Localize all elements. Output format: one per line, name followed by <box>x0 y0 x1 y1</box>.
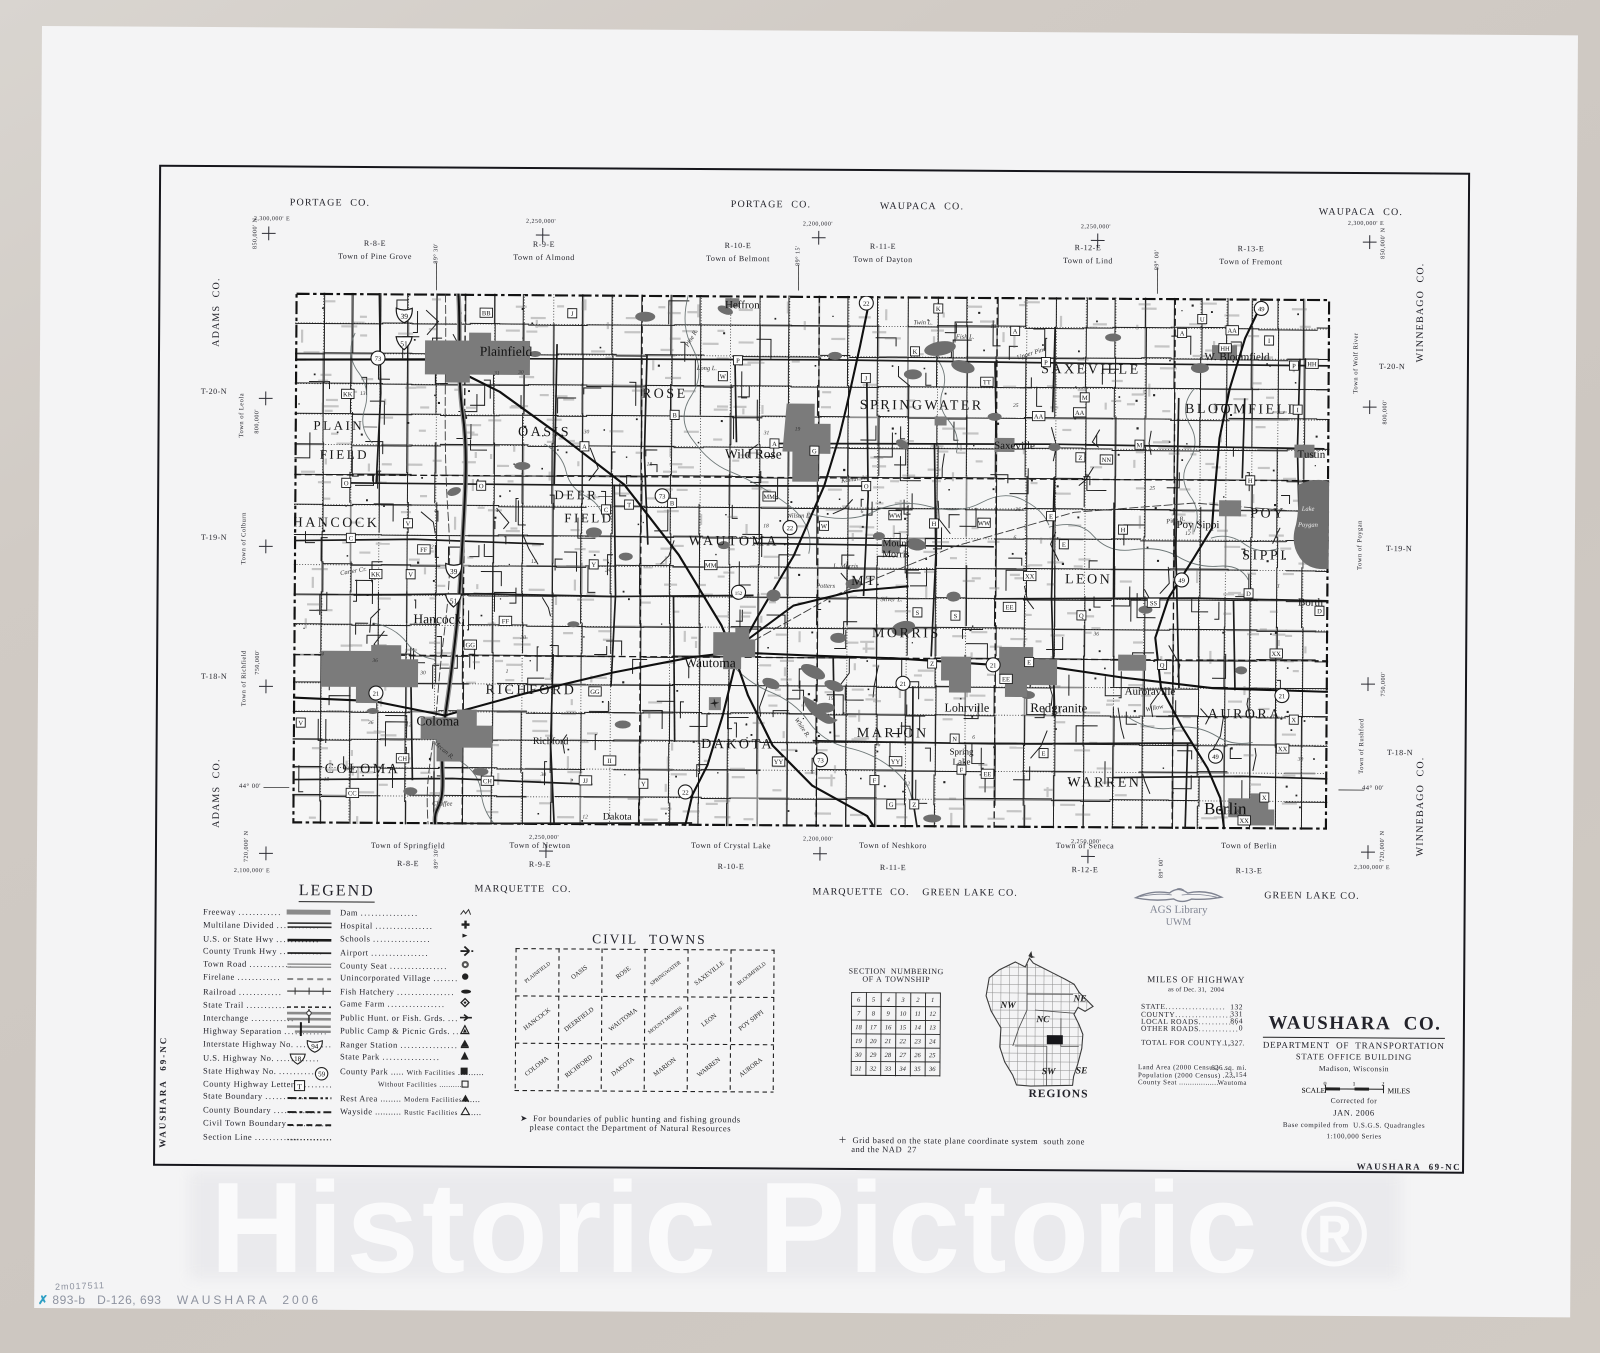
svg-text:V: V <box>405 521 410 528</box>
svg-text:34: 34 <box>898 1066 906 1073</box>
svg-text:CH: CH <box>482 779 491 786</box>
svg-text:17: 17 <box>870 1024 877 1031</box>
svg-text:Poygan: Poygan <box>1297 522 1318 529</box>
svg-text:NE: NE <box>1072 994 1086 1004</box>
svg-text:YY: YY <box>890 759 900 766</box>
svg-text:22: 22 <box>786 526 793 533</box>
svg-text:7: 7 <box>1134 365 1137 371</box>
svg-text:SCALE: SCALE <box>1301 1086 1325 1095</box>
svg-text:V: V <box>408 572 413 579</box>
svg-text:XX: XX <box>1239 818 1249 825</box>
svg-text:30: 30 <box>517 370 524 376</box>
svg-text:21: 21 <box>899 681 906 688</box>
svg-text:MM: MM <box>705 563 717 570</box>
svg-text:V: V <box>298 720 303 727</box>
svg-text:MT.: MT. <box>851 574 882 589</box>
svg-text:30: 30 <box>1296 757 1303 763</box>
svg-text:0: 0 <box>1324 1082 1327 1088</box>
svg-text:D: D <box>1246 591 1251 598</box>
svg-text:30: 30 <box>519 635 526 641</box>
svg-text:32: 32 <box>869 1066 877 1073</box>
svg-text:Twin L.: Twin L. <box>913 320 933 327</box>
svg-text:11: 11 <box>915 1011 921 1018</box>
svg-text:FIELD: FIELD <box>319 447 368 462</box>
svg-text:H: H <box>1247 478 1252 485</box>
svg-text:24: 24 <box>605 567 611 574</box>
svg-text:L. Morris: L. Morris <box>832 563 858 570</box>
svg-text:4: 4 <box>887 997 891 1004</box>
svg-text:51: 51 <box>449 597 457 606</box>
svg-text:21: 21 <box>1278 694 1285 701</box>
svg-text:39: 39 <box>449 567 457 576</box>
svg-text:H: H <box>1120 527 1125 534</box>
svg-text:Silver L.: Silver L. <box>880 597 902 604</box>
svg-text:Z: Z <box>912 802 916 809</box>
svg-text:W: W <box>719 374 726 381</box>
svg-text:EE: EE <box>1005 605 1013 612</box>
svg-text:XX: XX <box>1025 574 1035 581</box>
svg-text:35: 35 <box>913 1066 921 1073</box>
svg-text:24: 24 <box>929 1038 936 1045</box>
svg-text:1: 1 <box>1353 1082 1356 1088</box>
svg-text:Q: Q <box>1079 613 1084 620</box>
svg-text:OASIS: OASIS <box>518 425 571 440</box>
svg-text:25: 25 <box>1149 486 1155 492</box>
svg-text:FF: FF <box>420 547 428 554</box>
svg-text:18: 18 <box>990 324 996 330</box>
svg-text:KK: KK <box>371 572 381 579</box>
svg-text:30: 30 <box>582 430 589 436</box>
svg-text:Lake: Lake <box>1300 506 1314 513</box>
svg-text:LEON: LEON <box>700 1012 718 1028</box>
svg-text:59: 59 <box>318 1070 326 1078</box>
svg-text:WAUTOMA: WAUTOMA <box>608 1007 639 1033</box>
svg-text:U: U <box>1199 317 1204 324</box>
svg-text:AA: AA <box>1227 328 1237 335</box>
svg-text:Coloma: Coloma <box>416 714 459 729</box>
svg-text:X: X <box>1291 718 1296 725</box>
svg-text:AGS Library: AGS Library <box>1150 904 1208 916</box>
svg-text:BLOOMFIELD: BLOOMFIELD <box>1185 402 1300 418</box>
svg-text:152: 152 <box>734 592 742 597</box>
svg-text:Redgranite: Redgranite <box>1030 700 1087 715</box>
svg-text:M: M <box>1136 443 1142 450</box>
svg-text:7: 7 <box>1200 759 1203 765</box>
svg-text:WARREN: WARREN <box>1067 776 1141 791</box>
svg-text:1: 1 <box>505 669 508 675</box>
svg-text:F: F <box>872 778 876 785</box>
svg-text:10: 10 <box>900 1011 907 1018</box>
svg-text:SAXEVILLE: SAXEVILLE <box>693 960 726 987</box>
svg-text:ROSE: ROSE <box>641 387 687 402</box>
svg-text:PLAINFIELD: PLAINFIELD <box>524 961 552 985</box>
svg-text:2: 2 <box>916 997 920 1004</box>
svg-text:Dakota: Dakota <box>602 812 632 823</box>
svg-text:SE: SE <box>1076 1066 1088 1076</box>
svg-text:AURORA: AURORA <box>738 1056 764 1078</box>
svg-text:EE: EE <box>983 772 991 779</box>
svg-text:18: 18 <box>323 777 329 783</box>
svg-text:33: 33 <box>884 1066 892 1073</box>
svg-text:SW: SW <box>1042 1067 1056 1077</box>
svg-text:GG: GG <box>590 689 600 696</box>
svg-text:G: G <box>812 449 817 456</box>
svg-text:49: 49 <box>1178 578 1185 585</box>
svg-text:6: 6 <box>1013 535 1016 541</box>
svg-text:22: 22 <box>682 790 689 797</box>
svg-text:B: B <box>672 413 677 420</box>
svg-text:21: 21 <box>885 1038 892 1045</box>
svg-text:12: 12 <box>929 1011 936 1018</box>
svg-text:7: 7 <box>857 1010 861 1017</box>
svg-text:HANCOCK: HANCOCK <box>292 516 379 532</box>
svg-text:30: 30 <box>539 772 546 778</box>
svg-text:WARREN: WARREN <box>696 1056 722 1078</box>
svg-text:Potters: Potters <box>815 583 835 590</box>
svg-text:36: 36 <box>928 1066 936 1073</box>
svg-text:18: 18 <box>763 524 769 530</box>
svg-text:Q: Q <box>1159 663 1164 670</box>
svg-text:HH: HH <box>1220 346 1230 353</box>
svg-text:6: 6 <box>972 735 975 741</box>
svg-text:25: 25 <box>929 1052 936 1059</box>
svg-text:5: 5 <box>872 997 876 1004</box>
svg-text:6: 6 <box>860 509 863 515</box>
svg-text:3: 3 <box>900 997 905 1004</box>
svg-text:F: F <box>959 768 963 775</box>
svg-text:LEON: LEON <box>1065 573 1112 588</box>
svg-text:39: 39 <box>400 312 408 321</box>
svg-text:7: 7 <box>1226 811 1229 817</box>
svg-text:26: 26 <box>914 1052 921 1059</box>
svg-text:PLAIN—: PLAIN— <box>313 418 379 433</box>
svg-text:K: K <box>936 306 941 313</box>
svg-text:19: 19 <box>794 427 800 433</box>
svg-text:Heffron: Heffron <box>725 300 760 312</box>
svg-text:BLOOMFIELD: BLOOMFIELD <box>736 961 767 987</box>
svg-text:COLOMA: COLOMA <box>524 1055 551 1078</box>
svg-text:2: 2 <box>1382 1082 1385 1088</box>
svg-text:NC: NC <box>1035 1015 1050 1025</box>
svg-text:XX: XX <box>1277 746 1287 753</box>
svg-text:27: 27 <box>899 1052 906 1059</box>
svg-text:SPRINGWATER: SPRINGWATER <box>649 960 682 988</box>
svg-text:AURORA: AURORA <box>1207 708 1281 723</box>
svg-text:18: 18 <box>294 1055 302 1063</box>
svg-text:NW: NW <box>999 1001 1016 1011</box>
svg-text:31: 31 <box>762 431 769 437</box>
svg-text:SAXEVILLE: SAXEVILLE <box>1041 362 1141 378</box>
svg-text:Fish L.: Fish L. <box>954 334 974 341</box>
svg-text:SS: SS <box>1149 601 1157 608</box>
svg-text:73: 73 <box>817 758 824 765</box>
svg-text:MORRIS: MORRIS <box>872 626 941 641</box>
svg-text:H: H <box>931 521 936 528</box>
svg-text:36: 36 <box>367 720 374 726</box>
svg-text:SIPPI: SIPPI <box>1242 549 1287 564</box>
svg-text:MOUNT MORRIS: MOUNT MORRIS <box>647 1006 684 1036</box>
svg-text:N: N <box>952 736 957 743</box>
svg-text:51: 51 <box>400 340 408 349</box>
svg-text:Morris: Morris <box>882 550 909 561</box>
svg-text:14: 14 <box>914 1025 921 1032</box>
svg-text:K: K <box>912 349 917 356</box>
svg-text:A: A <box>1179 331 1184 338</box>
svg-text:P: P <box>736 358 740 365</box>
svg-text:Plainfield: Plainfield <box>479 344 532 359</box>
svg-text:12: 12 <box>582 815 588 821</box>
svg-text:A: A <box>1012 329 1017 336</box>
svg-text:M: M <box>1081 395 1087 402</box>
svg-text:1: 1 <box>931 997 934 1004</box>
svg-text:19: 19 <box>828 696 834 702</box>
svg-text:C: C <box>348 536 352 543</box>
svg-text:12: 12 <box>904 782 910 788</box>
svg-text:E: E <box>1027 660 1031 667</box>
svg-text:WW: WW <box>888 513 901 520</box>
svg-text:24: 24 <box>318 651 324 658</box>
svg-text:28: 28 <box>885 1052 892 1059</box>
svg-text:I: I <box>1268 338 1270 345</box>
svg-text:POY: POY <box>1250 507 1286 522</box>
svg-text:12: 12 <box>406 723 412 729</box>
svg-text:MM: MM <box>763 494 775 501</box>
svg-text:73: 73 <box>374 356 381 363</box>
svg-text:E: E <box>1041 751 1045 758</box>
svg-text:9: 9 <box>887 1011 891 1018</box>
svg-text:WW: WW <box>977 521 990 528</box>
svg-text:O: O <box>863 484 868 491</box>
svg-text:Auroraville: Auroraville <box>1124 686 1175 698</box>
svg-text:W. Bloomfield: W. Bloomfield <box>1204 351 1270 363</box>
svg-text:BB: BB <box>481 311 490 318</box>
svg-text:O: O <box>478 484 483 491</box>
svg-text:POY SIPPI: POY SIPPI <box>737 1009 765 1033</box>
svg-text:73: 73 <box>658 494 665 501</box>
svg-text:Y: Y <box>591 562 596 569</box>
svg-text:36: 36 <box>1092 632 1099 638</box>
svg-text:DEER—: DEER— <box>554 488 614 503</box>
svg-text:I: I <box>1296 408 1298 415</box>
svg-text:COLOMA: COLOMA <box>324 762 400 777</box>
svg-text:25: 25 <box>1013 403 1019 409</box>
svg-text:GG: GG <box>465 642 475 649</box>
svg-text:18: 18 <box>1233 810 1239 816</box>
svg-text:Saxeville: Saxeville <box>994 440 1035 452</box>
svg-text:1: 1 <box>1277 584 1280 590</box>
svg-text:19: 19 <box>855 1038 862 1045</box>
svg-text:23: 23 <box>914 1038 921 1045</box>
svg-text:T: T <box>627 502 631 509</box>
svg-text:30: 30 <box>419 671 426 677</box>
svg-text:E: E <box>1061 542 1065 549</box>
svg-text:S: S <box>915 610 919 617</box>
svg-text:FF: FF <box>501 619 509 626</box>
svg-text:Tustin: Tustin <box>1297 449 1325 461</box>
svg-text:Z: Z <box>1078 455 1082 462</box>
svg-text:RICHFORD: RICHFORD <box>564 1054 595 1080</box>
svg-text:Long L.: Long L. <box>695 365 717 372</box>
svg-text:UWM: UWM <box>1166 917 1192 928</box>
svg-text:13: 13 <box>360 391 366 397</box>
svg-text:HH: HH <box>1307 362 1317 369</box>
svg-text:15: 15 <box>900 1024 907 1031</box>
svg-text:Y: Y <box>641 782 646 789</box>
svg-text:DAKOTA: DAKOTA <box>701 737 774 752</box>
svg-text:22: 22 <box>900 1038 907 1045</box>
svg-text:18: 18 <box>855 1024 862 1031</box>
svg-text:CC: CC <box>348 791 357 798</box>
svg-text:D: D <box>1317 609 1322 616</box>
svg-text:XX: XX <box>1271 651 1281 658</box>
svg-text:A: A <box>582 444 587 451</box>
svg-text:31: 31 <box>854 1066 862 1073</box>
svg-text:WAUTOMA: WAUTOMA <box>688 534 778 550</box>
svg-text:MILES: MILES <box>1387 1086 1410 1095</box>
svg-text:Richford: Richford <box>532 736 568 747</box>
svg-text:NN: NN <box>1101 457 1111 464</box>
svg-text:30: 30 <box>854 1052 862 1059</box>
svg-text:Lohrville: Lohrville <box>944 701 989 715</box>
svg-text:MARION: MARION <box>856 726 928 741</box>
svg-text:II: II <box>607 758 611 765</box>
svg-text:E: E <box>1049 514 1053 521</box>
svg-text:W: W <box>820 524 827 531</box>
svg-text:Hancock: Hancock <box>413 612 461 627</box>
svg-text:18: 18 <box>646 462 652 468</box>
svg-text:S: S <box>953 613 957 620</box>
svg-text:94: 94 <box>311 1043 319 1051</box>
svg-text:13: 13 <box>929 1025 936 1032</box>
svg-text:20: 20 <box>870 1038 877 1045</box>
svg-text:YY: YY <box>773 759 783 766</box>
svg-text:Spring: Spring <box>949 747 974 757</box>
svg-text:36: 36 <box>873 742 880 748</box>
svg-text:CH: CH <box>398 756 407 763</box>
svg-text:6: 6 <box>857 997 861 1004</box>
svg-text:Chaffee: Chaffee <box>432 801 452 808</box>
svg-text:JJ: JJ <box>582 778 588 785</box>
svg-text:HANCOCK: HANCOCK <box>522 1007 552 1032</box>
svg-text:12: 12 <box>531 559 537 565</box>
svg-text:AA: AA <box>1075 410 1085 417</box>
svg-text:36: 36 <box>1014 507 1021 513</box>
svg-text:Wautoma: Wautoma <box>684 655 735 670</box>
svg-text:OASIS: OASIS <box>570 964 589 981</box>
svg-text:21: 21 <box>372 691 379 698</box>
svg-text:22: 22 <box>863 301 870 308</box>
svg-text:A: A <box>772 441 777 448</box>
svg-text:DAKOTA: DAKOTA <box>610 1056 636 1078</box>
svg-text:P: P <box>1044 360 1048 367</box>
svg-text:16: 16 <box>885 1024 892 1031</box>
svg-text:Wilson L.: Wilson L. <box>786 513 811 520</box>
svg-text:21: 21 <box>989 663 996 670</box>
svg-text:P: P <box>1292 364 1296 371</box>
svg-text:31: 31 <box>493 371 500 377</box>
svg-text:O: O <box>343 481 348 488</box>
svg-text:B: B <box>669 501 674 508</box>
svg-text:12: 12 <box>1185 531 1191 537</box>
svg-text:ROSE: ROSE <box>615 965 632 981</box>
svg-text:EE: EE <box>1002 677 1010 684</box>
svg-text:8: 8 <box>872 1010 876 1017</box>
svg-text:RICHFORD: RICHFORD <box>485 683 576 699</box>
svg-text:SPRINGWATER: SPRINGWATER <box>859 398 983 414</box>
svg-text:G: G <box>888 802 893 809</box>
svg-text:49: 49 <box>1258 307 1265 314</box>
svg-text:AA: AA <box>1034 414 1044 421</box>
svg-text:DEERFIELD: DEERFIELD <box>563 1006 596 1033</box>
svg-text:36: 36 <box>371 658 378 664</box>
svg-text:MARION: MARION <box>652 1056 677 1078</box>
svg-text:29: 29 <box>870 1052 877 1059</box>
svg-text:Mount: Mount <box>882 539 909 550</box>
svg-text:49: 49 <box>1212 754 1219 761</box>
svg-text:TT: TT <box>982 380 990 387</box>
svg-text:X: X <box>1262 795 1267 802</box>
svg-text:C: C <box>603 507 607 514</box>
svg-text:Z: Z <box>930 661 934 668</box>
svg-text:KK: KK <box>343 392 353 399</box>
